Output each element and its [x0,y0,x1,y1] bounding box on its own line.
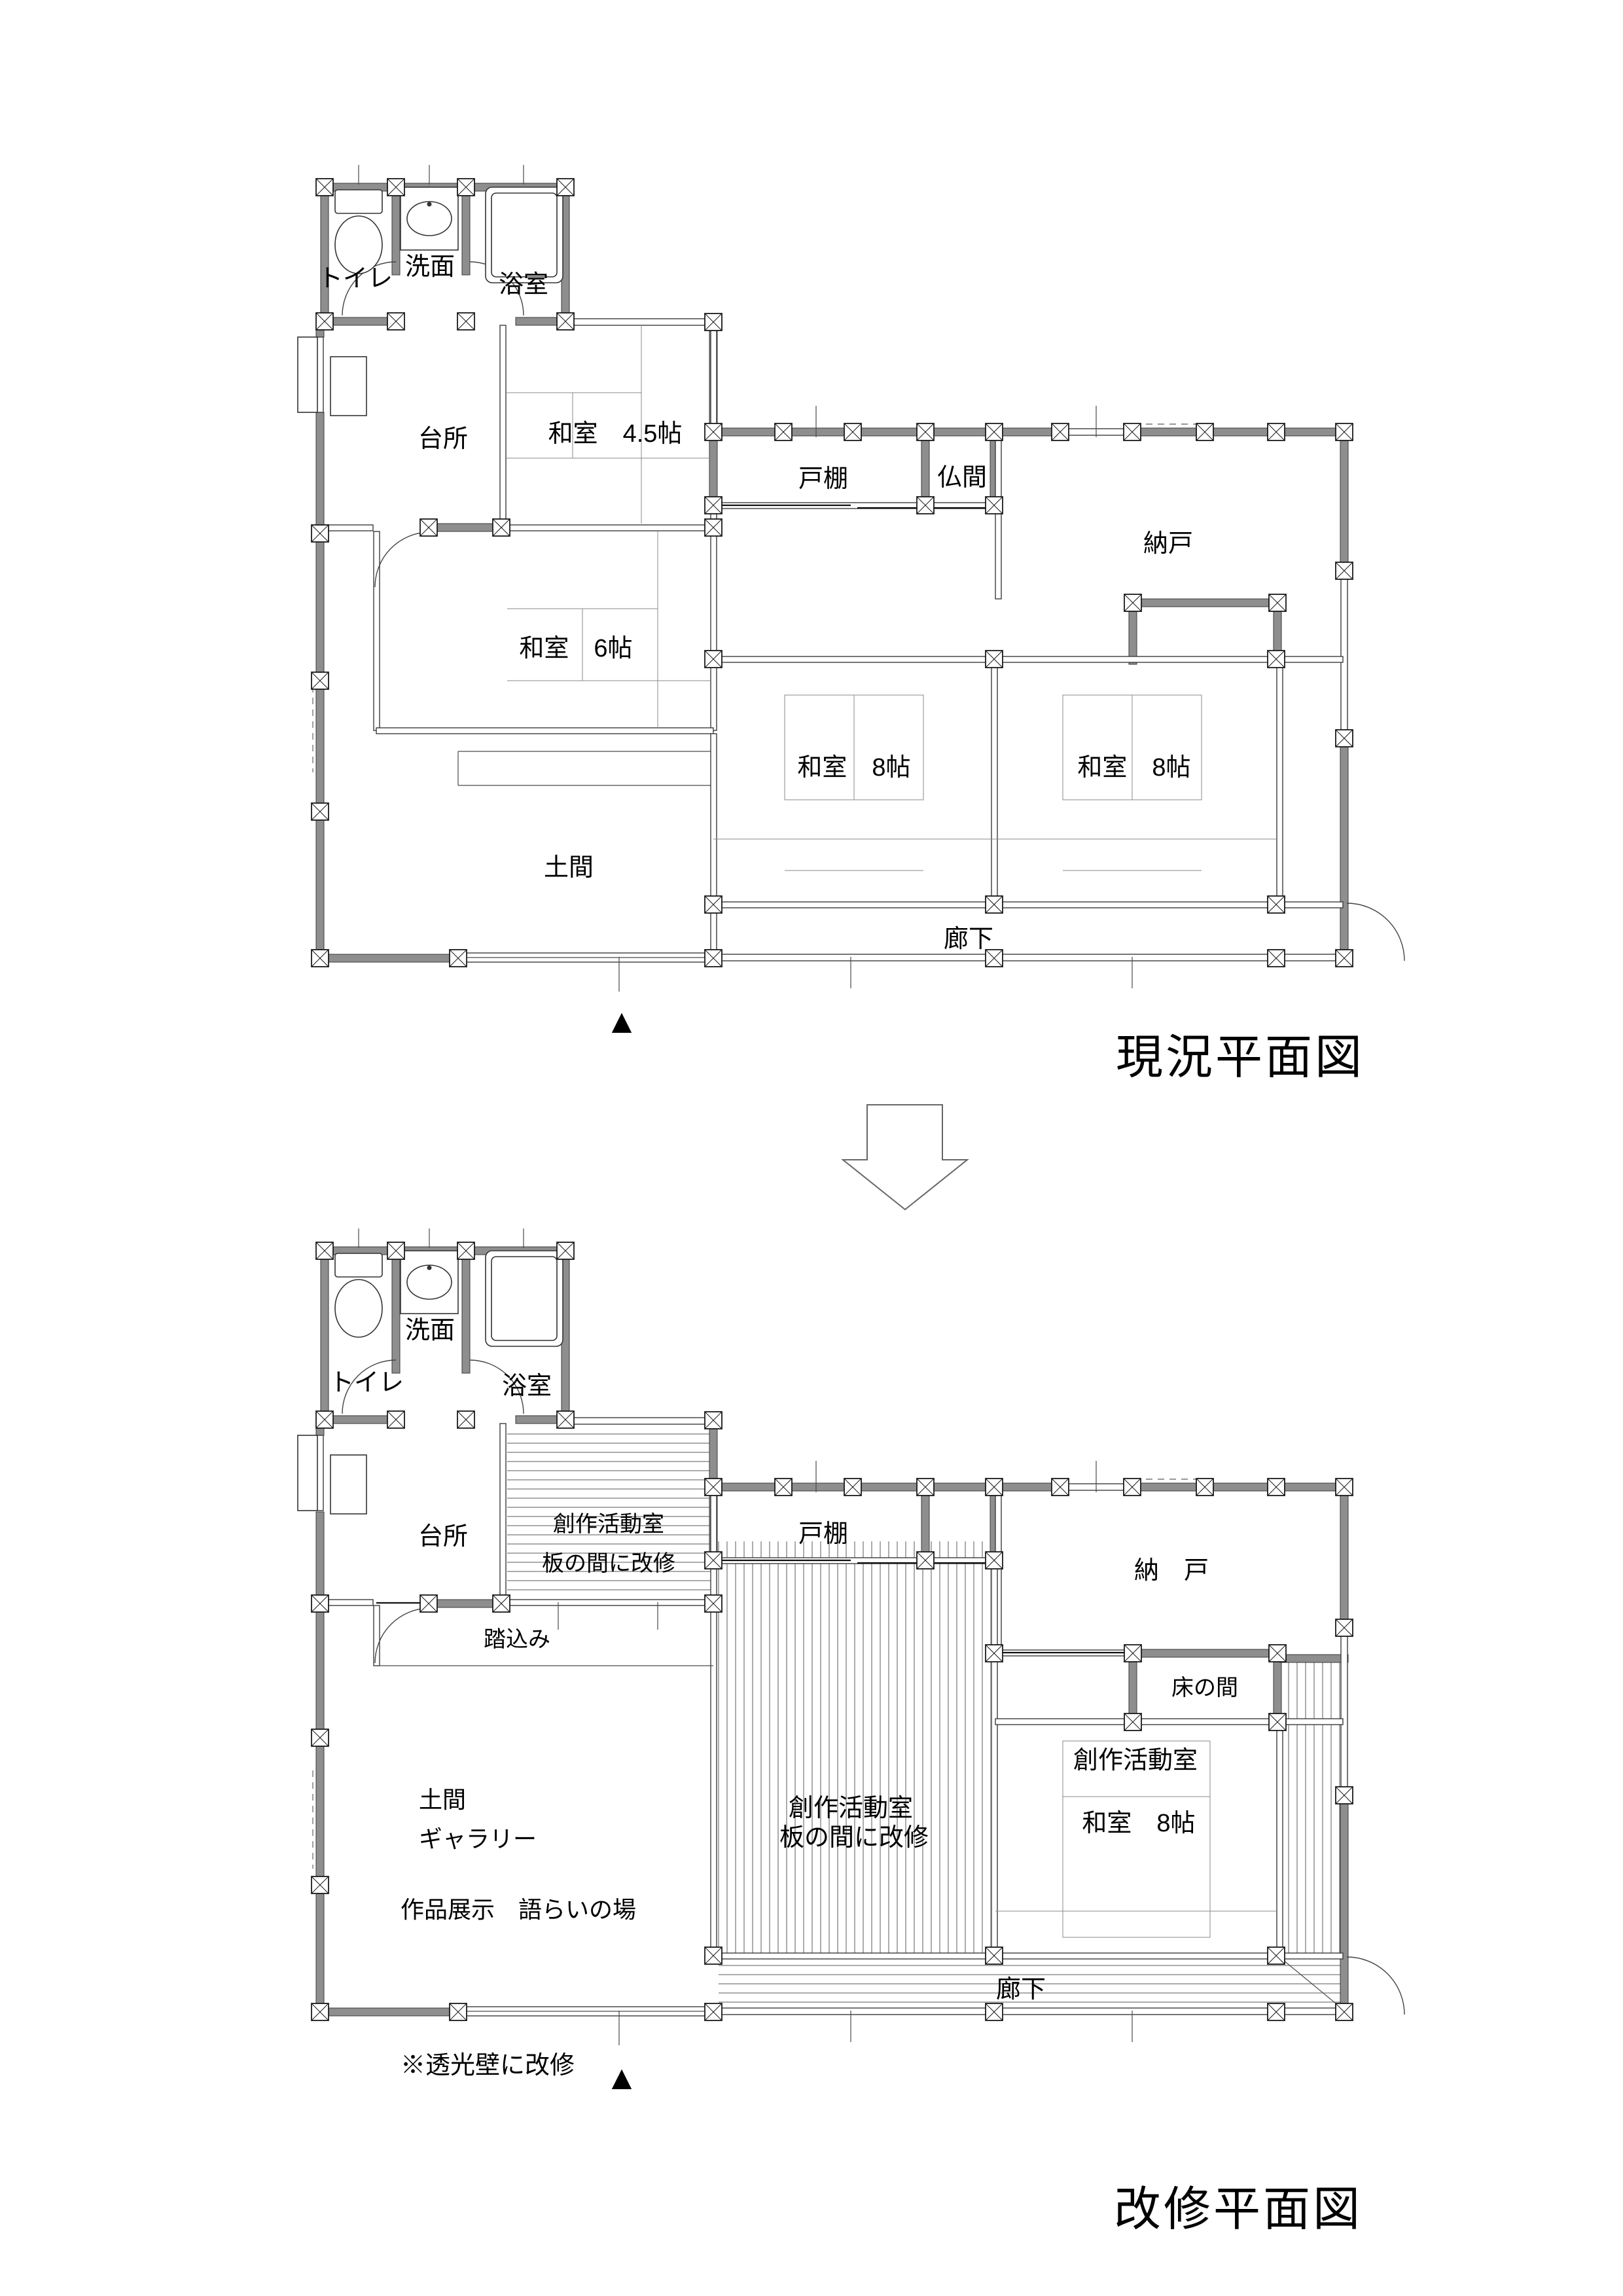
room-label-todana: 戸棚 [798,465,848,493]
ren-label-exhibit: 作品展示 語らいの場 [401,1896,636,1923]
room-label-washroom: 洗面 [405,253,455,281]
room-label-nando: 納戸 [1143,530,1193,558]
room-label-doma: 土間 [544,854,594,882]
ren-label-doma: 土間 [419,1786,466,1813]
renovated-sink-fixture [401,1251,458,1314]
ren-label-sousaku-north-2: 板の間に改修 [542,1551,675,1576]
current-posts [312,179,1353,967]
ren-label-rouka: 廊下 [996,1976,1046,2003]
bathtub-fixture [486,187,563,283]
ren-label-gallery: ギャラリー [419,1825,537,1852]
ren-label-washitsu8: 和室 8帖 [1082,1810,1195,1837]
current-windows [317,319,1347,962]
west-porch [298,337,317,412]
entrance-marker-current: ▲ [605,1003,638,1041]
floorplan-drawing: トイレ 洗面 浴室 台所 和室 4.5帖 戸棚 仏間 納戸 和室 6帖 和室 8… [0,0,1623,2296]
floor-plan-current: トイレ 洗面 浴室 台所 和室 4.5帖 戸棚 仏間 納戸 和室 6帖 和室 8… [298,165,1404,1084]
ren-label-nando: 納 戸 [1134,1557,1209,1585]
renovated-bathtub-fixture [486,1251,563,1346]
floor-plan-renovated: トイレ 洗面 浴室 台所 創作活動室 板の間に改修 戸棚 納 戸 踏込み 床の間… [298,1229,1404,2236]
sink-fixture [401,187,458,250]
ren-label-sousaku-center-1: 創作活動室 [789,1795,913,1822]
hatch-east-veranda [1281,1662,1340,1956]
ren-label-sousaku-center-2: 板の間に改修 [779,1824,929,1852]
plan-title-renovated: 改修平面図 [1114,2183,1363,2236]
floorplan-document: トイレ 洗面 浴室 台所 和室 4.5帖 戸棚 仏間 納戸 和室 6帖 和室 8… [0,0,1623,2296]
ren-label-fumikomi: 踏込み [484,1627,550,1652]
ren-label-todana: 戸棚 [798,1520,848,1548]
room-label-rouka: 廊下 [944,925,993,953]
renovated-west-porch [298,1435,317,1511]
down-arrow [843,1105,967,1210]
room-label-butsuma: 仏間 [937,464,987,492]
shutter-dashed-lines [313,424,1207,772]
ren-note-translucent-wall: ※透光壁に改修 [401,2052,575,2079]
renovated-kitchen-counter [330,1455,366,1514]
room-label-kitchen: 台所 [418,425,468,453]
ren-label-bath: 浴室 [502,1372,552,1400]
room-label-toilet: トイレ [318,265,393,293]
plan-title-current: 現況平面図 [1116,1031,1364,1084]
room-label-washitsu8-right: 和室 8帖 [1077,754,1190,781]
ren-label-washroom: 洗面 [405,1317,455,1344]
ren-label-kitchen: 台所 [418,1523,468,1551]
room-label-bath: 浴室 [499,271,548,298]
hatch-center-itanoma [715,1541,991,1956]
ren-label-sousaku-north-1: 創作活動室 [553,1512,664,1537]
renovated-toilet-fixture [335,1253,382,1337]
toilet-fixture [335,190,382,274]
entrance-marker-renovated: ▲ [605,2059,638,2097]
current-walls [316,183,1348,962]
room-label-washitsu6: 和室 6帖 [519,635,632,662]
room-label-washitsu8-left: 和室 8帖 [797,754,910,781]
doma-step-edge [458,751,711,785]
ren-label-sousaku-east: 創作活動室 [1073,1747,1198,1774]
dimension-ticks [359,165,1132,992]
current-tatami-lines [506,325,1277,870]
kitchen-counter [330,357,366,416]
room-label-washitsu45: 和室 4.5帖 [548,420,683,448]
ren-label-tokonoma: 床の間 [1171,1676,1238,1700]
ren-label-toilet: トイレ [329,1369,404,1397]
